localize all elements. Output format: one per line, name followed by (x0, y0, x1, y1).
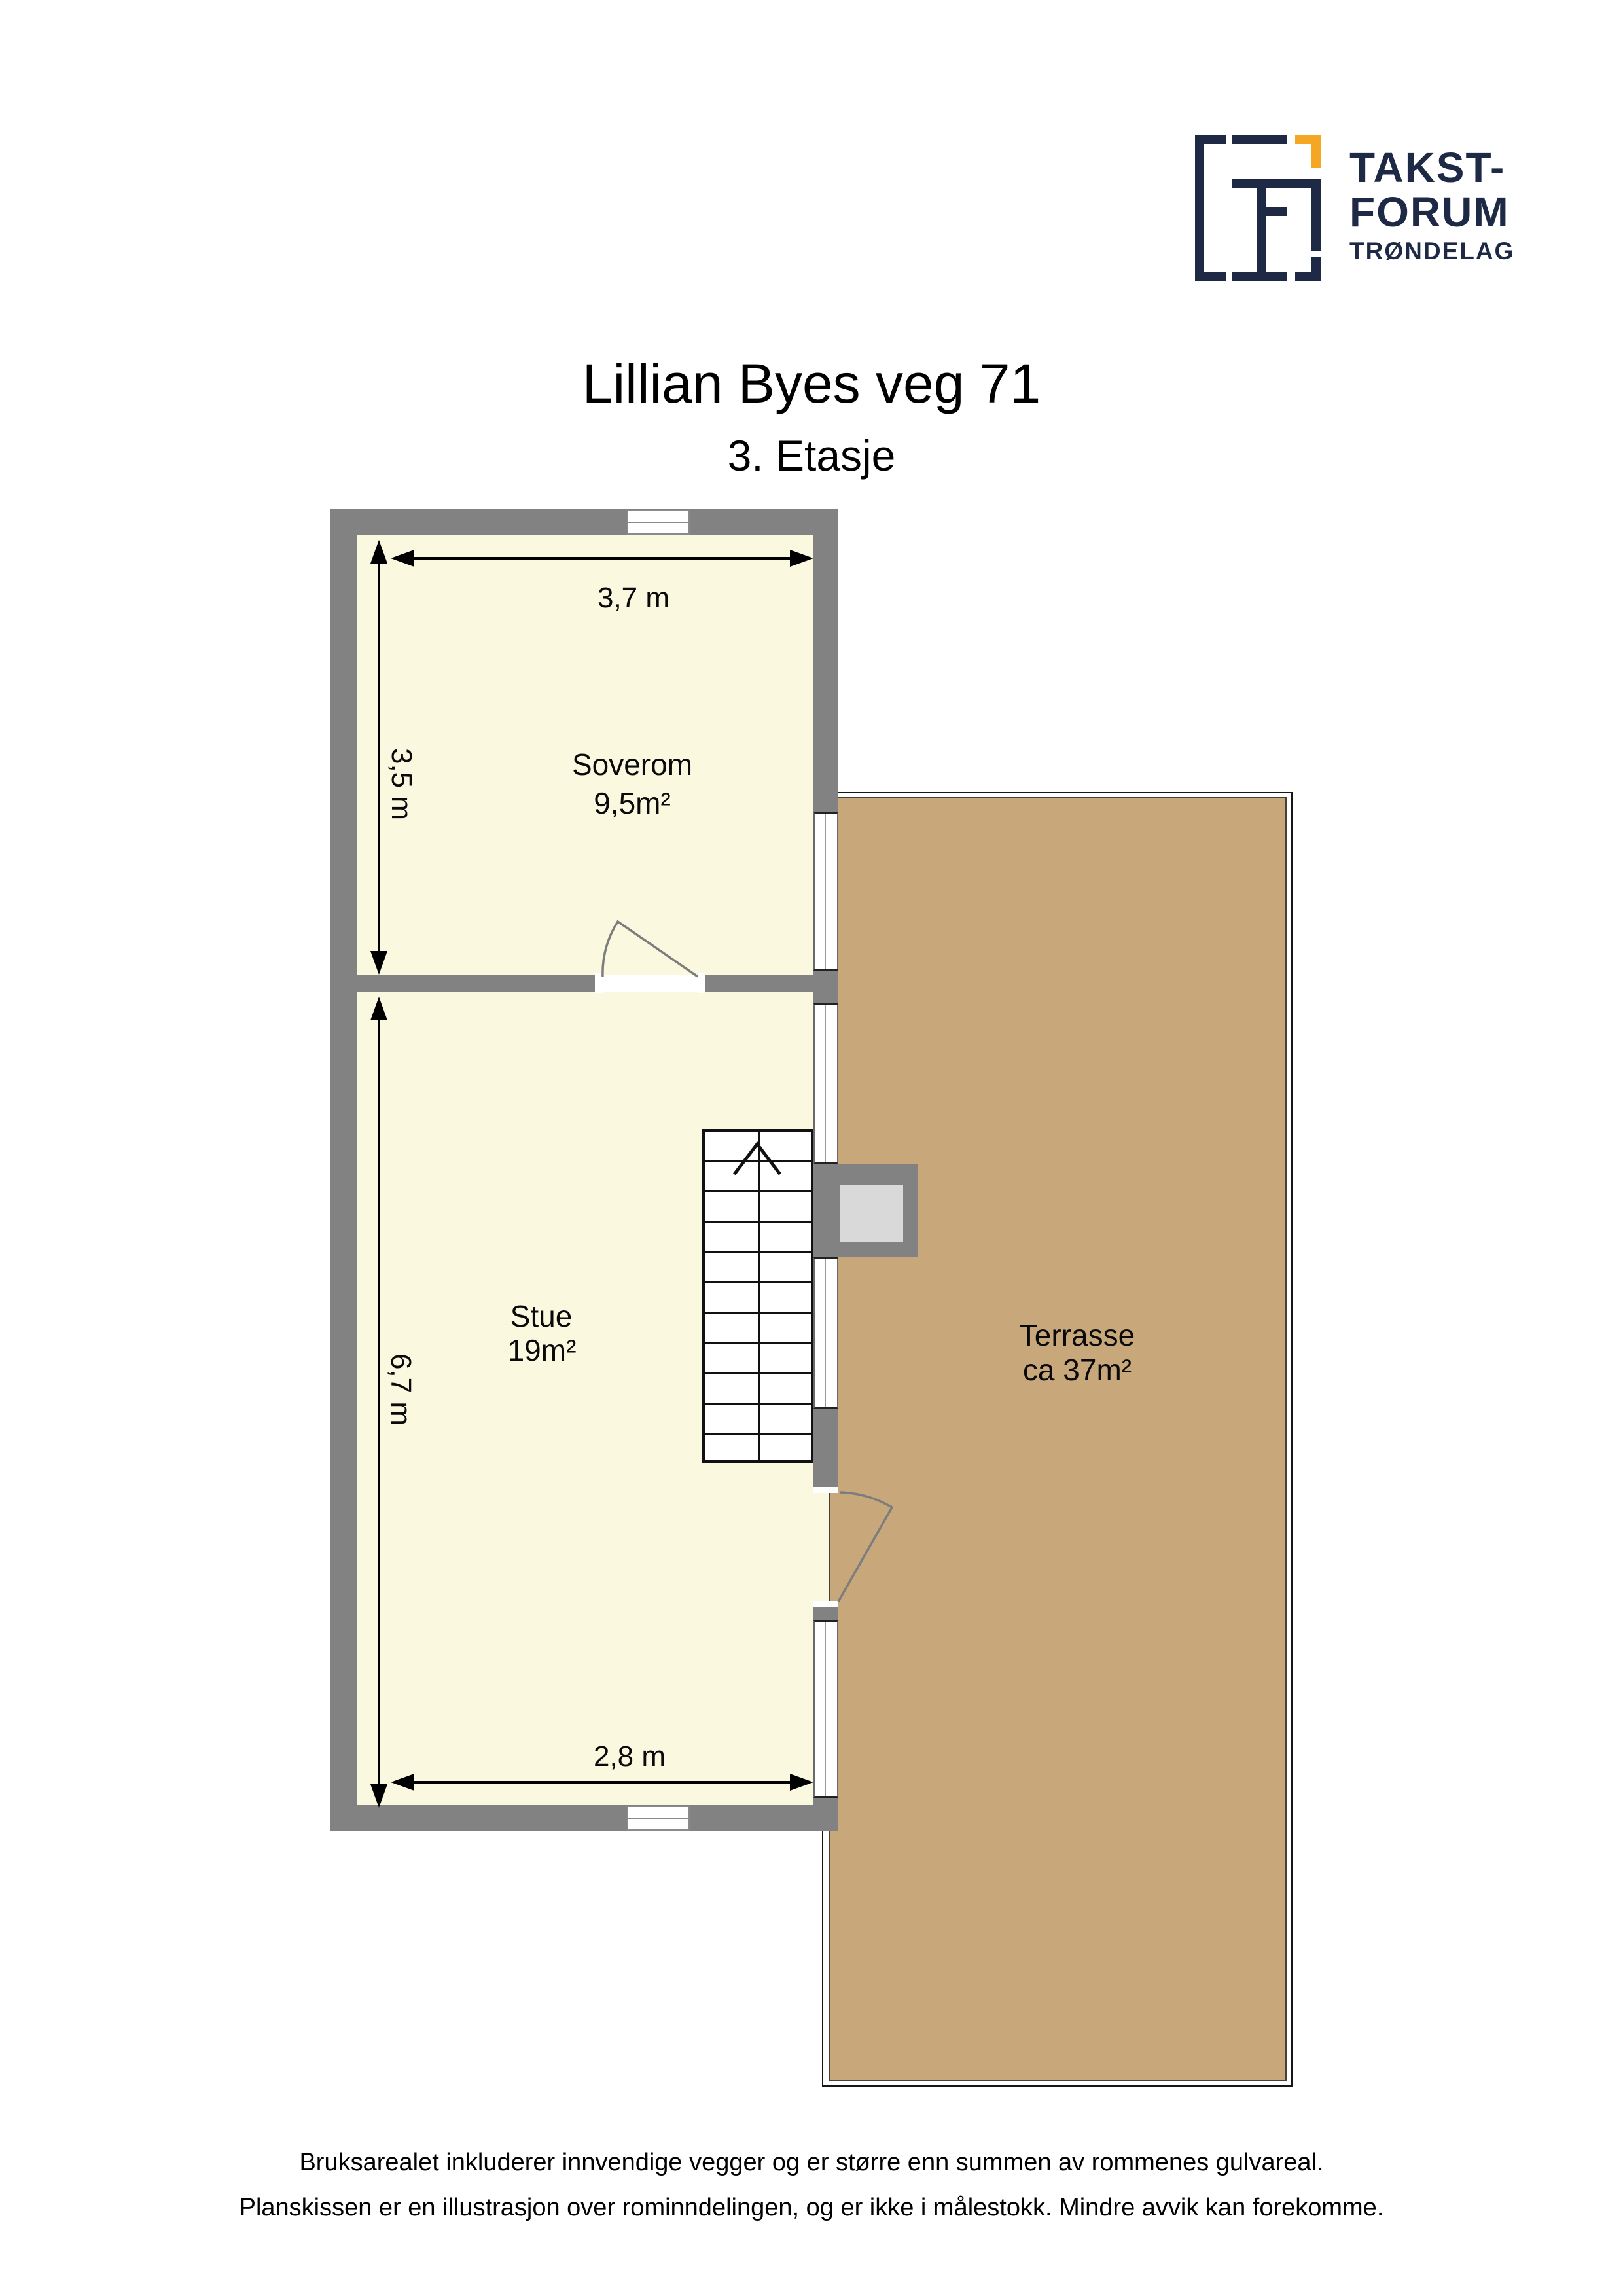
wall-east-mid (813, 1409, 838, 1488)
wall-interior-right (705, 975, 813, 992)
stue-label: Stue (510, 1299, 573, 1334)
floorplan-page: { "logo": { "line1": "TAKST-", "line2": … (0, 0, 1623, 2296)
wall-south (330, 1805, 838, 1831)
staircase (702, 1129, 813, 1463)
logo-word-takst: TAKST- (1349, 145, 1585, 190)
terrace-area (829, 797, 1287, 2081)
stue-area-label: 19m² (508, 1333, 577, 1368)
wall-north (330, 509, 838, 535)
wall-interior-left (330, 975, 603, 992)
south-window (627, 1806, 690, 1831)
terrasse-label: Terrasse (1020, 1318, 1135, 1353)
soverom-label: Soverom (572, 747, 692, 782)
logo-word-forum: FORUM (1349, 190, 1585, 234)
takstforum-logo-icon (1195, 135, 1325, 281)
takstforum-logo-text: TAKST- FORUM TRØNDELAG (1349, 145, 1585, 268)
dim-label-stue-width: 2,8 m (594, 1740, 666, 1773)
dim-label-soverom-width: 3,7 m (597, 582, 669, 615)
terrace-door-jamb-bottom (813, 1601, 838, 1607)
east-window-band-3 (813, 1257, 838, 1409)
east-window-band-4 (813, 1620, 838, 1798)
page-subtitle: 3. Etasje (0, 431, 1623, 480)
north-window (627, 510, 690, 535)
interior-door-jamb-right (698, 973, 705, 993)
terrasse-area-label: ca 37m² (1023, 1352, 1132, 1388)
wall-east-junction (813, 971, 838, 1003)
footer-disclaimer-line2: Planskissen er en illustrasjon over romi… (0, 2194, 1623, 2222)
dim-label-soverom-height: 3,5 m (385, 748, 418, 820)
soverom-area-label: 9,5m² (594, 785, 671, 821)
wall-east-upper (813, 509, 838, 812)
wall-east-stub (813, 1606, 838, 1620)
wall-west (330, 509, 357, 1831)
interior-door-jamb-left (595, 973, 603, 993)
east-window-band-2 (813, 1003, 838, 1164)
logo-word-trondelag: TRØNDELAG (1349, 234, 1585, 268)
footer-disclaimer-line1: Bruksarealet inkluderer innvendige vegge… (0, 2149, 1623, 2177)
dim-label-stue-height: 6,7 m (384, 1354, 417, 1426)
chimney-box-inner (840, 1185, 903, 1242)
terrace-door-jamb-top (813, 1487, 838, 1493)
wall-east-corner (813, 1798, 838, 1831)
stair-center-divider (758, 1132, 760, 1460)
east-window-band-1 (813, 812, 838, 971)
page-title: Lillian Byes veg 71 (0, 352, 1623, 415)
